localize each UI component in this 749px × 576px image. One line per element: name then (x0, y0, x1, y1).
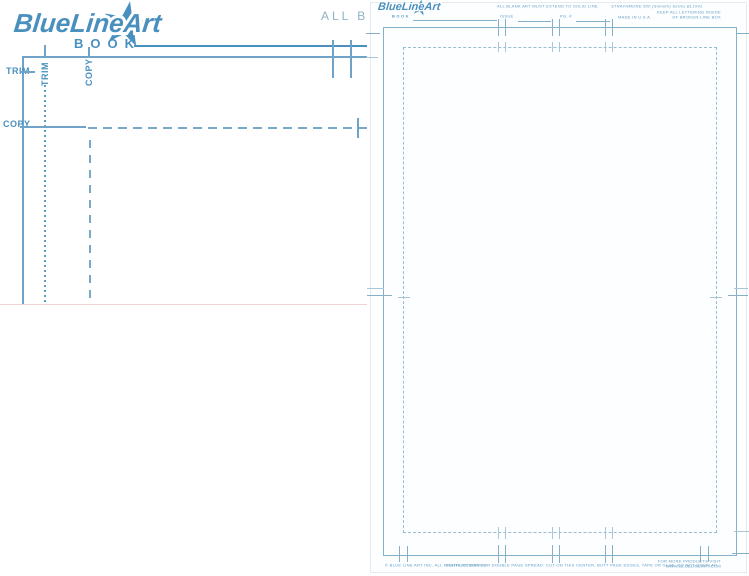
tick-mark (407, 546, 408, 562)
tick-mark (367, 288, 384, 289)
tick-mark (605, 42, 606, 52)
copy-label-vertical: COPY (84, 50, 94, 86)
tick-mark (498, 545, 499, 563)
tick-mark (367, 295, 392, 296)
tick-mark (332, 40, 334, 78)
broken-line-lettering-box (403, 47, 717, 533)
tick-mark (552, 545, 553, 563)
tick-mark (732, 553, 749, 554)
tick-mark (366, 33, 380, 34)
tick-mark (612, 527, 613, 539)
copy-guide-vertical-line (89, 140, 91, 303)
tick-mark (605, 545, 606, 563)
left-board-scan: BlueLineArt BlueLineArt BOOK ALL B TRIM … (0, 0, 370, 308)
blank-art-note: ALL BLANK ART MUST EXTEND TO SOLID LINE (497, 4, 598, 9)
blueline-logo-small: BlueLineArt BlueLineArt (378, 1, 448, 21)
tick-mark (559, 545, 560, 563)
book-underline (413, 20, 497, 21)
tick-mark (366, 57, 378, 58)
tick-mark (552, 19, 553, 36)
series-title: STRATHMORE 500 (Smooth) Series BL1041 (611, 4, 703, 9)
tick-mark (559, 42, 560, 52)
tick-mark (710, 297, 722, 298)
trim-label-vertical: TRIM (40, 52, 50, 86)
tick-mark (605, 19, 606, 36)
book-product-label: BOOK (74, 36, 141, 51)
tick-mark (605, 527, 606, 539)
scan-edge (0, 304, 367, 305)
lettering-note-line1: KEEP ALL LETTERING INSIDE (636, 10, 721, 15)
brand-text: BlueLineArt (12, 8, 163, 39)
bottom-right-note-line2: WWW.BLUELINEART.COM (636, 564, 721, 569)
tick-mark (612, 42, 613, 52)
issue-field-line (518, 21, 551, 22)
tick-mark (505, 527, 506, 539)
tick-mark (498, 527, 499, 539)
tick-mark (357, 118, 359, 138)
tick-mark (350, 40, 352, 78)
tick-mark (505, 545, 506, 563)
tick-mark (399, 546, 400, 562)
tick-mark (505, 42, 506, 52)
right-board-scan: BlueLineArt BlueLineArt BOOK ALL BLANK A… (370, 0, 749, 576)
tick-mark (398, 297, 410, 298)
book-product-label: BOOK (392, 14, 410, 19)
copy-leader-line (20, 126, 86, 128)
tick-mark (728, 295, 748, 296)
tick-mark (559, 19, 560, 36)
tick-mark (559, 527, 560, 539)
page-number-field-label: PG. # (560, 14, 572, 19)
tick-mark (612, 545, 613, 563)
tick-mark (552, 527, 553, 539)
issue-field-label: ISSUE (500, 14, 514, 19)
tick-mark (498, 42, 499, 52)
tick-mark (552, 42, 553, 52)
lettering-note-line2: OF BROKEN-LINE BOX (636, 15, 721, 20)
copy-guide-horizontal-line (88, 127, 367, 129)
trim-line-top (22, 56, 367, 58)
tick-mark (734, 531, 749, 532)
trim-line-left (22, 56, 24, 304)
tick-mark (736, 33, 749, 34)
trim-leader-line (20, 71, 35, 73)
tick-mark (498, 19, 499, 36)
tick-mark (505, 19, 506, 36)
brand-text: BlueLineArt (377, 1, 441, 13)
tick-mark (734, 288, 748, 289)
trim-guide-dotted-line (44, 85, 46, 303)
tick-mark (612, 19, 613, 36)
blank-art-note-partial: ALL B (321, 9, 368, 23)
copy-label: COPY (3, 119, 31, 129)
bottom-right-note-line1: FOR MORE PRODUCTS VISIT (636, 559, 721, 564)
